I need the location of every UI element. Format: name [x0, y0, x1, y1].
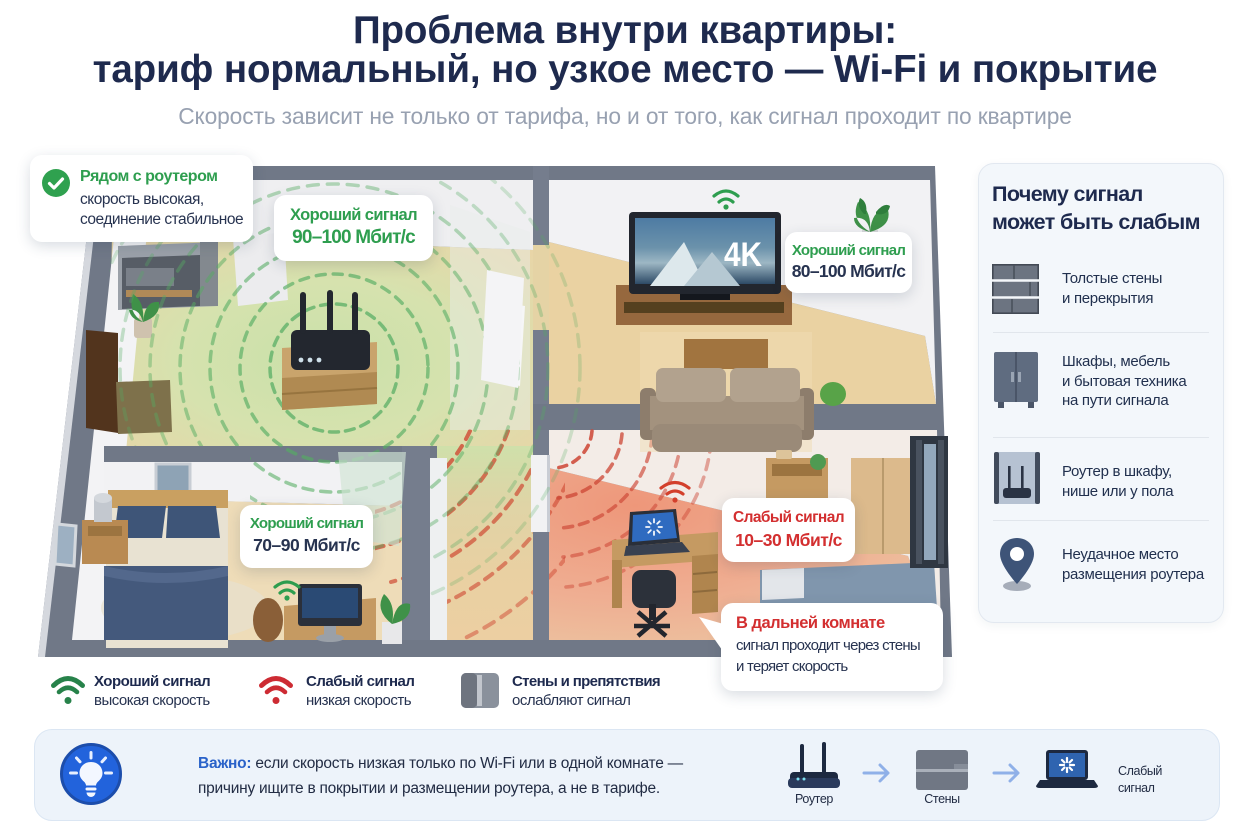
- svg-text:4K: 4K: [724, 236, 762, 274]
